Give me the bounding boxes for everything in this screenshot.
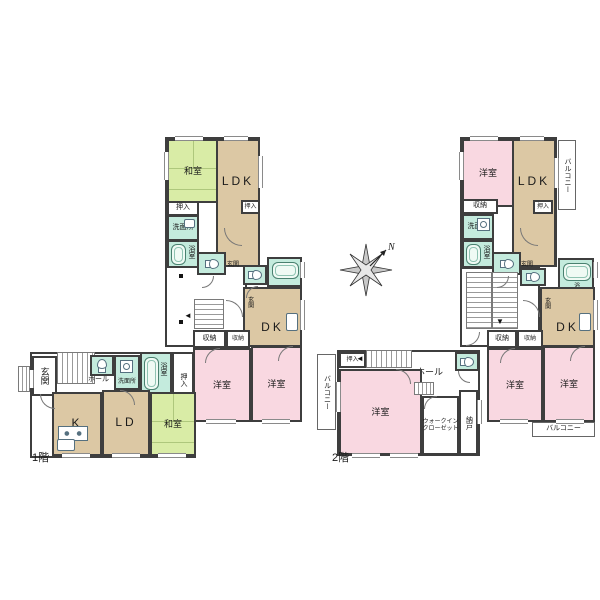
- room-label: 洋室: [560, 379, 578, 389]
- closet-oshiire-1f-top-right: 押入: [241, 200, 260, 214]
- post: [179, 274, 183, 278]
- room-label-line2: クローゼット: [423, 426, 459, 433]
- toilet-room-1f-mid: [243, 265, 267, 285]
- room-k-1f: K: [52, 392, 102, 456]
- closet-shuno-1f-right: 収納: [226, 330, 250, 348]
- room-label: 和室: [164, 419, 182, 429]
- room-label: 洋室: [267, 379, 285, 389]
- room-label: 洋室: [506, 380, 524, 390]
- room-yoshitsu-2f-mid-right: 洋室: [543, 346, 595, 422]
- window: [112, 453, 140, 458]
- toilet-icon: [500, 259, 514, 269]
- room-yoshitsu-1f-right: 洋室: [251, 346, 302, 422]
- room-label: 収納: [232, 336, 244, 343]
- north-label: N: [388, 242, 395, 253]
- bathtub-icon: [563, 263, 591, 281]
- room-dk-2f: DK: [540, 287, 595, 347]
- window: [175, 136, 203, 141]
- room-label: LD: [115, 416, 136, 430]
- stairs-2f-hall: [366, 350, 412, 368]
- toilet-icon: [526, 272, 540, 282]
- bathtub-icon: [144, 357, 159, 390]
- room-yokushitsu-2f-top: 浴室: [462, 240, 494, 268]
- bathtub-icon: [272, 262, 299, 279]
- room-yoshitsu-2f-top: 洋室: [462, 139, 514, 207]
- room-label: 押入: [244, 204, 256, 211]
- closet-oshiire-1f-top-left: 押入: [167, 201, 199, 216]
- room-nando-2f: 納戸: [459, 390, 478, 455]
- stairs-1f: [194, 299, 224, 329]
- closet-oshiire-2f-top: 押入: [533, 200, 553, 214]
- sink-icon: [184, 219, 195, 228]
- bathtub-icon: [171, 244, 186, 265]
- balcony-2f-left: バルコニー: [317, 354, 336, 430]
- toilet-icon: [248, 270, 262, 280]
- room-label: バルコニー: [563, 158, 571, 193]
- kitchen-counter-icon: [579, 313, 591, 331]
- kitchen-sink-icon: [57, 439, 75, 451]
- room-label: バルコニー: [546, 425, 581, 433]
- window: [352, 453, 380, 458]
- window: [300, 262, 305, 278]
- window: [477, 400, 482, 424]
- hall-label-1f: ホール: [88, 376, 109, 384]
- window: [336, 382, 341, 412]
- closet-shuno-2f-left: 収納: [487, 330, 517, 348]
- closet-shuno-2f-top: 収納: [462, 199, 498, 214]
- toilet-room-2f-bottom: [455, 352, 479, 371]
- window: [500, 419, 528, 424]
- room-label: 収納: [203, 335, 217, 343]
- room-label: 浴室: [482, 245, 490, 259]
- room-label: 洋室: [371, 407, 389, 417]
- stairs-divider: [491, 272, 493, 329]
- floor-plan-canvas: 和室 LDK 押入 押入 洗面所 浴室 ◄ 玄関 浴室 DK 玄関: [0, 0, 600, 600]
- room-label: 玄関: [39, 367, 49, 385]
- bathroom-1f-mid: [267, 257, 302, 287]
- room-yokushitsu-1f-bottom: 浴室: [140, 352, 172, 394]
- room-yoshitsu-1f-left: 洋室: [193, 348, 251, 422]
- balcony-2f-top: バルコニー: [558, 140, 576, 210]
- room-label: 浴室: [187, 245, 195, 259]
- toilet-room-2f-mid: [520, 268, 546, 286]
- room-label: 押入: [179, 373, 187, 387]
- room-label: DK: [556, 321, 579, 335]
- room-label: 浴室: [159, 362, 167, 376]
- kitchen-counter-icon: [286, 313, 298, 331]
- room-label: 洋室: [479, 168, 497, 178]
- window: [593, 262, 598, 278]
- room-washitsu-1f-top: 和室: [167, 139, 219, 203]
- room-genkan-1f: 玄関: [32, 356, 57, 396]
- room-label-line1: ウォークイン: [423, 419, 459, 426]
- stairs-direction-arrow: ◄: [356, 355, 364, 363]
- toilet-room-1f-top: [197, 252, 226, 275]
- window: [300, 300, 305, 330]
- closet-shuno-2f-right: 収納: [517, 330, 543, 348]
- room-label: 押入: [537, 204, 549, 211]
- storage-steps-icon: [414, 382, 434, 395]
- room-label: LDK: [518, 175, 550, 189]
- floor-label-1f: 1階: [32, 452, 49, 464]
- room-label: 納戸: [464, 416, 472, 430]
- window: [164, 152, 169, 180]
- room-label: 収納: [495, 335, 509, 343]
- stairs-direction-arrow: ▼: [496, 318, 504, 326]
- window: [258, 156, 263, 188]
- window: [459, 152, 464, 180]
- entry-genkan-label-1f-upper: 玄関: [227, 262, 239, 269]
- floor-label-2f: 2階: [332, 452, 349, 464]
- room-label: バルコニー: [322, 375, 330, 410]
- room-senmenjo-1f-top: 洗面所: [167, 215, 199, 241]
- balcony-2f-bottom-right: バルコニー: [532, 422, 595, 437]
- window: [158, 453, 186, 458]
- toilet-icon: [460, 357, 474, 367]
- window: [62, 453, 90, 458]
- window: [593, 300, 598, 330]
- window: [520, 136, 544, 141]
- room-label: 押入: [176, 204, 190, 212]
- room-label: 収納: [524, 336, 536, 343]
- room-label: 収納: [473, 202, 487, 210]
- washing-machine-icon: [477, 218, 490, 231]
- toilet-icon: [97, 359, 107, 373]
- room-senmenjo-1f-bottom: 洗面所: [114, 355, 140, 390]
- window: [224, 136, 248, 141]
- window: [470, 136, 498, 141]
- room-yoshitsu-2f-mid-left: 洋室: [487, 348, 543, 422]
- stairs-direction-arrow: ◄: [184, 312, 192, 320]
- toilet-room-1f-bottom: [90, 355, 114, 376]
- window: [262, 419, 290, 424]
- window: [29, 370, 34, 388]
- window: [390, 453, 418, 458]
- room-label: 洋室: [213, 380, 231, 390]
- window: [556, 419, 584, 424]
- window: [554, 158, 559, 188]
- bathtub-icon: [466, 244, 481, 265]
- washing-machine-icon: [120, 360, 133, 373]
- room-label: 洗面所: [118, 379, 136, 386]
- room-washitsu-1f-bottom: 和室: [150, 392, 196, 456]
- post: [179, 320, 183, 324]
- toilet-icon: [205, 259, 219, 269]
- room-label: 和室: [184, 166, 202, 176]
- entry-genkan-label-2f-lower: 玄関: [543, 297, 550, 309]
- room-senmenjo-2f: 洗面所: [462, 214, 494, 240]
- room-label: DK: [261, 321, 284, 335]
- room-yokushitsu-1f-top: 浴室: [167, 240, 199, 268]
- closet-shuno-1f-left: 収納: [193, 330, 226, 348]
- room-label: LDK: [222, 175, 254, 189]
- window: [206, 419, 236, 424]
